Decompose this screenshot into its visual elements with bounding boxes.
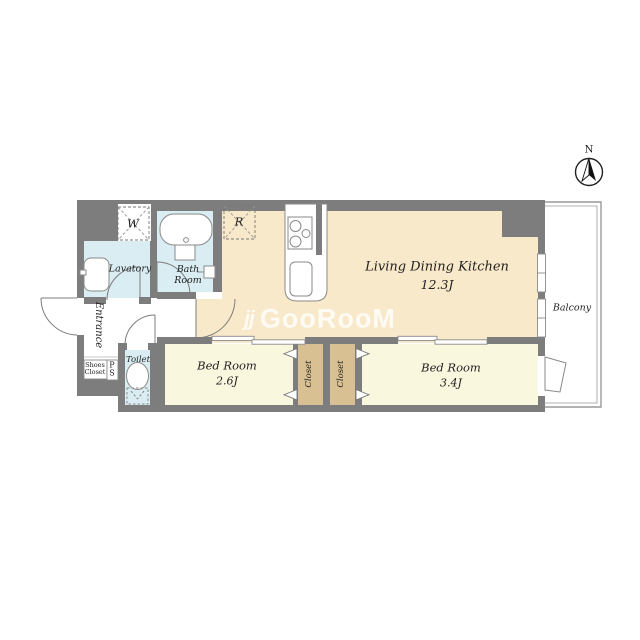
bath-label: Bath Room <box>167 265 209 287</box>
pipe-space-label: P S <box>109 362 114 379</box>
closet-right-label: Closet <box>337 360 347 387</box>
watermark: jj GooRooM <box>244 304 396 335</box>
ldk-size-label: 12.3J <box>421 278 454 292</box>
ldk-label: Living Dining Kitchen <box>365 261 509 276</box>
bedroom-small-sliding-door <box>212 336 254 340</box>
balcony-label: Balcony <box>553 304 591 315</box>
bedroom-large-label: Bed Room <box>421 361 481 374</box>
kitchen-wall-stub <box>316 204 322 255</box>
toilet-label: Toilet <box>126 356 150 366</box>
watermark-icon: jj <box>244 307 254 331</box>
washer-label: W <box>127 217 139 230</box>
wash-basin <box>80 258 109 291</box>
lavatory-label: Lavatory <box>109 265 151 276</box>
closet-left-label: Closet <box>305 360 315 387</box>
bedroom-large-size-label: 3.4J <box>440 378 462 391</box>
shoes-closet-label: Shoes Closet <box>85 362 106 376</box>
bedroom-small-label: Bed Room <box>197 359 257 372</box>
north-label: N <box>585 144 594 156</box>
bedroom-large-sliding-door <box>398 336 437 340</box>
entrance-label: Entrance <box>92 302 104 348</box>
entrance-door-arc <box>41 298 77 335</box>
toilet-door-arc <box>125 315 155 345</box>
kitchen-sink <box>290 262 312 296</box>
bedroom-small-size-label: 2.6J <box>216 376 238 389</box>
north-compass-icon <box>576 158 603 186</box>
floor-plan: Living Dining Kitchen 12.3J Bed Room 2.6… <box>0 0 640 640</box>
refrigerator-label: R <box>235 215 244 228</box>
watermark-text: GooRooM <box>260 304 396 335</box>
